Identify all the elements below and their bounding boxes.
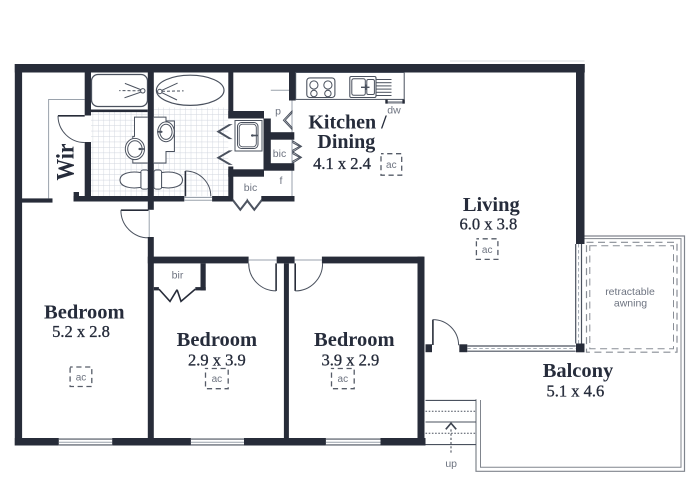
svg-text:2.9 x 3.9: 2.9 x 3.9 (188, 351, 246, 370)
svg-text:Dining: Dining (317, 131, 375, 153)
svg-text:4.1 x 2.4: 4.1 x 2.4 (313, 154, 371, 173)
svg-text:up: up (445, 458, 457, 470)
svg-text:Living: Living (463, 194, 521, 216)
svg-text:3.9 x 2.9: 3.9 x 2.9 (322, 351, 380, 370)
svg-text:ac: ac (212, 374, 223, 385)
svg-text:ac: ac (482, 245, 493, 256)
svg-text:f: f (280, 175, 283, 187)
svg-text:bir: bir (172, 269, 184, 281)
svg-text:bic: bic (244, 182, 257, 194)
svg-text:6.0 x 3.8: 6.0 x 3.8 (460, 215, 518, 234)
svg-text:awning: awning (614, 298, 647, 310)
svg-text:ac: ac (338, 374, 349, 385)
svg-text:dw: dw (387, 105, 401, 117)
svg-text:Bedroom: Bedroom (314, 329, 394, 351)
svg-text:Kitchen /: Kitchen / (308, 111, 387, 133)
svg-text:bic: bic (273, 148, 286, 160)
svg-text:ac: ac (76, 372, 87, 383)
svg-text:Wir: Wir (52, 144, 79, 181)
svg-text:5.1 x 4.6: 5.1 x 4.6 (547, 381, 605, 400)
svg-text:Balcony: Balcony (543, 360, 614, 382)
svg-text:ac: ac (386, 160, 397, 171)
svg-text:5.2 x 2.8: 5.2 x 2.8 (52, 322, 110, 341)
svg-text:p: p (275, 106, 281, 118)
svg-text:Bedroom: Bedroom (44, 302, 124, 324)
svg-text:Bedroom: Bedroom (177, 329, 257, 351)
svg-text:retractable: retractable (605, 286, 655, 298)
